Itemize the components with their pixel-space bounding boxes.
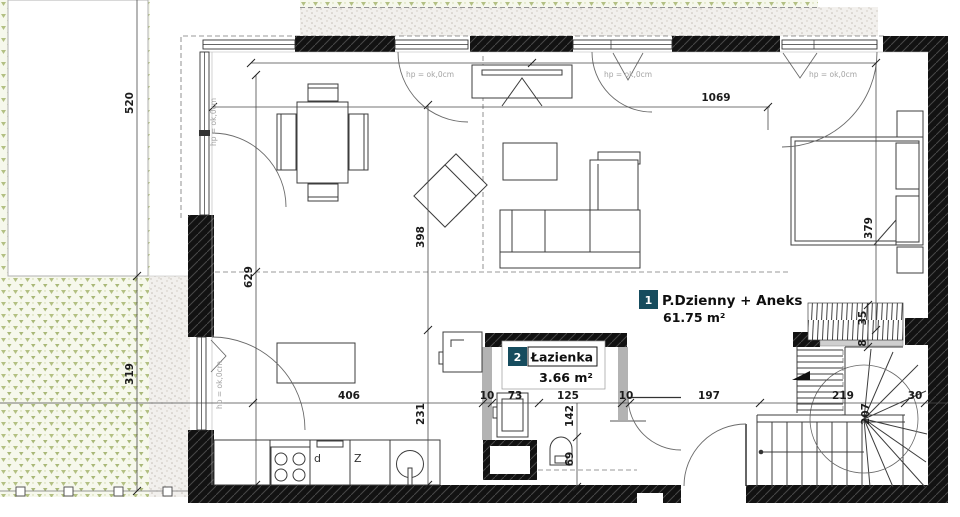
chair: [308, 184, 338, 201]
dim-10b: 10: [619, 390, 634, 402]
dim-125: 125: [557, 390, 579, 402]
door-arc-top-2: [398, 52, 468, 122]
hp-label-corner: hp = ok,0cm: [209, 98, 218, 146]
dim-219: 219: [832, 390, 854, 402]
dining-set: [277, 84, 368, 201]
armchair: [414, 154, 487, 227]
hp-label-top-2: hp = ok,0cm: [406, 70, 454, 79]
stair-winder-treads: [864, 349, 927, 487]
shower-enclosure-inner: [490, 446, 530, 474]
entrance-door-arc: [684, 424, 746, 486]
wall-bottom-notch: [637, 493, 663, 503]
gravel-strip-left: [149, 276, 190, 497]
sofa-chaise: [590, 160, 638, 212]
kitchen-counter: d Z: [214, 440, 440, 485]
grass-strip-top: [300, 0, 818, 7]
pillow: [896, 143, 919, 189]
dim-406: 406: [338, 390, 360, 402]
wall-bottom-left: [188, 485, 681, 503]
dim-69: 69: [564, 452, 576, 467]
dim-10a: 10: [480, 390, 495, 402]
chair: [308, 84, 338, 101]
bed: [791, 111, 923, 273]
coffee-table: [503, 143, 557, 180]
dim-197: 197: [698, 390, 720, 402]
door-arc-corner: [212, 133, 286, 207]
window-top-2: [395, 40, 468, 49]
hp-label-top-3: hp = ok,0cm: [604, 70, 652, 79]
room-number: 2: [514, 351, 522, 364]
dim-142: 142: [564, 405, 576, 427]
dim-8: 8: [857, 339, 869, 346]
dim-398: 398: [415, 226, 427, 248]
stair-balustrade-hatch: [808, 303, 903, 340]
room-number: 1: [645, 294, 653, 307]
nightstand: [897, 247, 923, 273]
fridge-handle: [439, 352, 443, 364]
window-top-4: [782, 40, 877, 49]
tv-screen: [482, 70, 562, 75]
hp-label-left-lower: hp = ok,0cm: [215, 361, 224, 409]
dim-520: 520: [124, 92, 136, 114]
bathroom-door-arc: [628, 397, 681, 450]
dining-table: [297, 102, 348, 183]
bathroom-partition-right: [618, 347, 628, 420]
wall-right: [928, 36, 948, 503]
window-top-corner: [203, 40, 295, 49]
wall-left-1: [188, 215, 214, 337]
tv-unit: [472, 65, 572, 106]
walk-line-start-dot: [759, 450, 764, 455]
dim-73: 73: [508, 390, 523, 402]
dim-231: 231: [415, 403, 427, 425]
window-top-3: [573, 40, 672, 49]
room-area: 61.75 m²: [663, 310, 725, 325]
dim-207: 207: [860, 403, 872, 425]
stair-treads-lower: [757, 415, 903, 487]
room-name: Łazienka: [530, 350, 593, 365]
hp-label-top-4: hp = ok,0cm: [809, 70, 857, 79]
dim-629: 629: [243, 266, 255, 288]
fridge: [439, 332, 482, 372]
wall-top-3: [672, 36, 780, 52]
room-area: 3.66 m²: [539, 370, 593, 385]
room-label-bathroom: 2 Łazienka 3.66 m²: [502, 341, 605, 389]
dim-319: 319: [124, 363, 136, 385]
room-label-living: 1 P.Dzienny + Aneks 61.75 m²: [639, 290, 802, 325]
stair-direction-wedge: [792, 371, 810, 380]
chair: [277, 114, 296, 170]
door-arc-top-4: [782, 52, 877, 147]
counter-handle: [317, 441, 343, 447]
plot-white-area: [8, 0, 148, 276]
floor-plan-canvas: d Z: [0, 0, 960, 517]
wall-newel-block: [905, 318, 928, 345]
dim-35: 35: [857, 311, 869, 326]
terrace-strip-top: [300, 7, 878, 36]
sink-tap: [408, 468, 412, 485]
window-left-lower: [197, 337, 206, 430]
dishwasher-label: d: [314, 452, 321, 465]
dim-379: 379: [863, 217, 875, 239]
sink-unit-label: Z: [354, 452, 362, 465]
room-name: P.Dzienny + Aneks: [662, 293, 802, 309]
pillow: [896, 196, 919, 242]
wall-bottom-right: [746, 485, 948, 503]
wall-top-1: [295, 36, 395, 52]
dim-1069: 1069: [701, 92, 730, 104]
chair: [349, 114, 368, 170]
sofa-body: [500, 210, 640, 268]
floor-plan-drawing: d Z: [0, 0, 960, 517]
wall-top-2: [470, 36, 573, 52]
nightstand: [897, 111, 923, 137]
dim-30: 30: [908, 390, 923, 402]
wall-left-2: [188, 430, 214, 492]
door-arc-top-3: [592, 52, 652, 112]
